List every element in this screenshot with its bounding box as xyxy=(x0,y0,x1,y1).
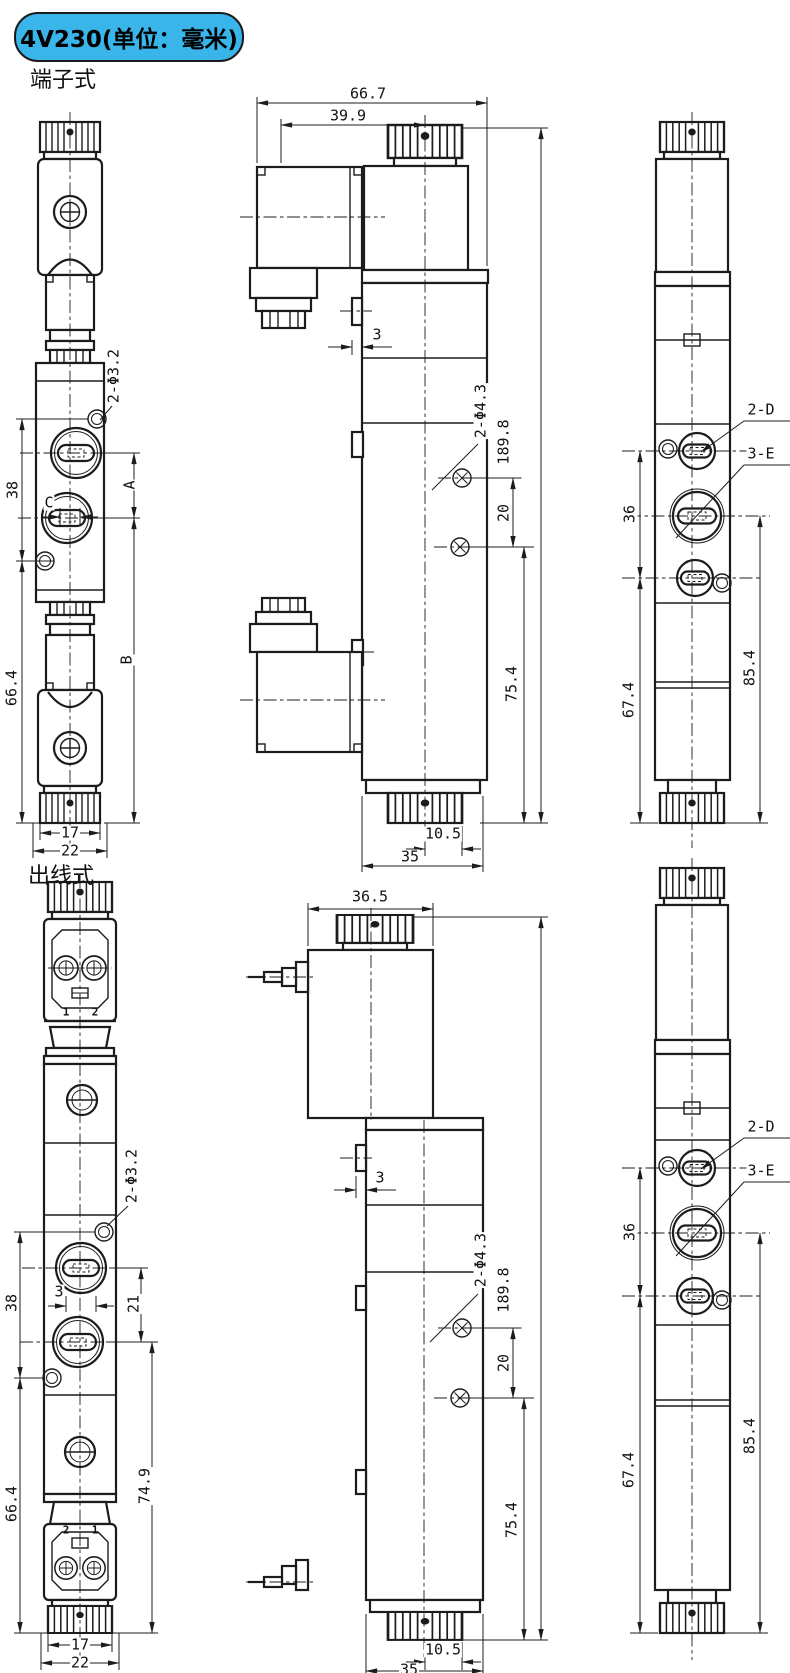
dim-667-g1: 66.7 xyxy=(349,87,387,102)
section-label-leadwire: 出线式 xyxy=(28,858,94,890)
dim-1898-g2: 189.8 xyxy=(497,1266,512,1313)
dim-20-g2: 20 xyxy=(497,1353,512,1373)
dim-22-g2: 22 xyxy=(70,1656,90,1671)
g2-right-view xyxy=(622,858,790,1660)
terminal-1-label: 1 xyxy=(62,1007,71,1018)
dim-36-g2: 36 xyxy=(623,1222,638,1242)
port-3E-g2: 3-E xyxy=(746,1164,775,1179)
dim-36-g1: 36 xyxy=(623,504,638,524)
dim-C-g1: C xyxy=(43,496,54,511)
dim-754-g1: 75.4 xyxy=(505,665,520,703)
dim-399-g1: 39.9 xyxy=(329,109,367,124)
g1-side-view xyxy=(240,97,548,872)
dim-3-g1s: 3 xyxy=(371,328,382,343)
dim-38-g1: 38 xyxy=(6,480,21,500)
title-text: 4V230(单位：毫米) xyxy=(20,20,238,54)
dim-105-g1: 10.5 xyxy=(424,827,462,842)
dim-21-g2: 21 xyxy=(127,1294,142,1314)
dim-674-g1: 67.4 xyxy=(622,681,637,719)
dim-749-g2: 74.9 xyxy=(138,1467,153,1505)
dim-105-g2: 10.5 xyxy=(424,1643,462,1658)
port-3E-g1: 3-E xyxy=(746,447,775,462)
dim-2phi32-g2: 2-Φ3.2 xyxy=(125,1148,140,1204)
dim-20-g1: 20 xyxy=(497,503,512,523)
section-label-terminal: 端子式 xyxy=(30,62,96,94)
terminal-2b-label: 2 xyxy=(62,1525,71,1536)
port-2D-g1: 2-D xyxy=(746,403,775,418)
technical-drawing-page: 4V230(单位：毫米) 端子式 出线式 2-Φ3.2 38 A B C 66.… xyxy=(0,0,790,1673)
dim-A-g1: A xyxy=(123,479,138,490)
terminal-1b-label: 1 xyxy=(91,1525,100,1536)
dim-1898-g1: 189.8 xyxy=(497,418,512,465)
dim-2phi43-g2: 2-Φ4.3 xyxy=(474,1232,489,1288)
g1-right-view xyxy=(622,112,790,848)
dim-674-g2: 67.4 xyxy=(622,1451,637,1489)
dim-365-g2: 36.5 xyxy=(351,890,389,905)
dim-B-g1: B xyxy=(120,654,135,665)
dim-664-g2f: 66.4 xyxy=(5,1485,20,1523)
dim-38-g2: 38 xyxy=(5,1293,20,1313)
dim-2phi43-g1: 2-Φ4.3 xyxy=(474,383,489,439)
dim-3-g2f: 3 xyxy=(53,1285,64,1300)
dim-664-g1f: 66.4 xyxy=(5,669,20,707)
dim-3-g2s: 3 xyxy=(374,1171,385,1186)
dim-35-g2: 35 xyxy=(399,1663,419,1673)
port-2D-g2: 2-D xyxy=(746,1120,775,1135)
dim-17-g1: 17 xyxy=(60,826,80,841)
valve-dimension-drawing xyxy=(0,0,790,1673)
dim-2phi32-g1: 2-Φ3.2 xyxy=(107,348,122,404)
terminal-2-label: 2 xyxy=(91,1007,100,1018)
dim-754-g2: 75.4 xyxy=(505,1501,520,1539)
dim-854-g2: 85.4 xyxy=(743,1417,758,1455)
dim-17-g2: 17 xyxy=(70,1638,90,1653)
g2-front-view xyxy=(14,875,158,1670)
dim-35-g1: 35 xyxy=(400,850,420,865)
dim-22-g1: 22 xyxy=(60,844,80,859)
title-badge: 4V230(单位：毫米) xyxy=(14,12,244,62)
dim-854-g1: 85.4 xyxy=(743,649,758,687)
